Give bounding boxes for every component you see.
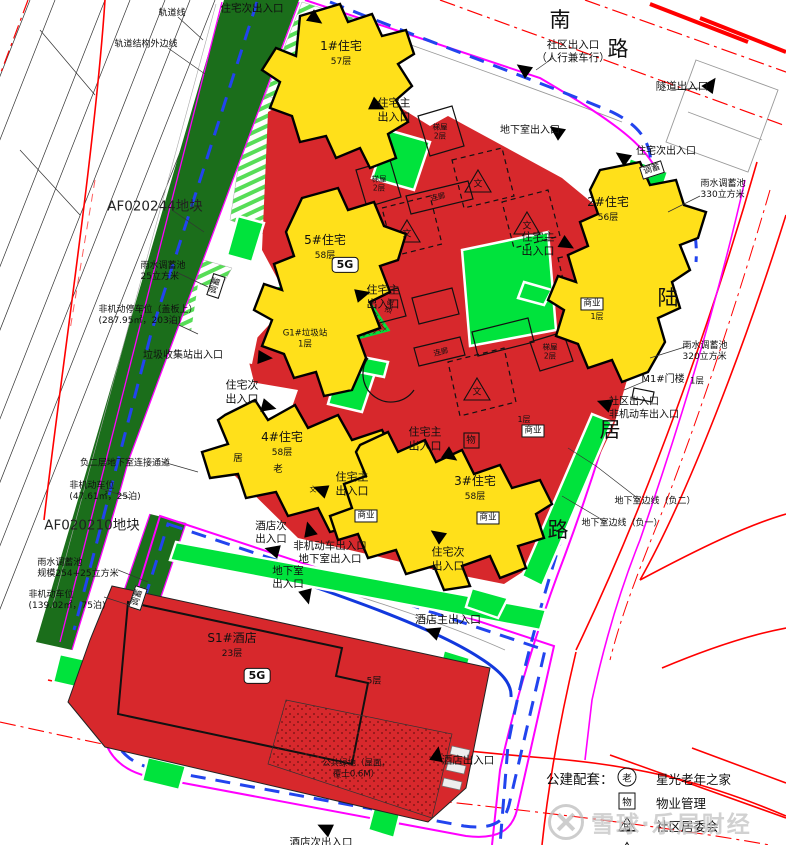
badge-5g-hotel: 5G <box>244 668 271 684</box>
tower-3-floors: 58层 <box>454 489 496 502</box>
hotel-block <box>68 586 490 822</box>
tower-1-floors: 57层 <box>320 54 362 67</box>
legend-label-elder: 星光老年之家 <box>656 769 731 788</box>
legend-symbol-culture: 文 <box>618 842 636 845</box>
label-tower-2: 2#住宅 56层 <box>587 193 629 223</box>
legend-symbol-elder-char: 老 <box>622 770 632 784</box>
base-map <box>0 0 786 845</box>
label-tower-4: 4#住宅 58层 <box>261 428 303 458</box>
label-tower-1: 1#住宅 57层 <box>320 37 362 67</box>
badge-biz-1: 商业 <box>354 509 377 522</box>
legend-symbol-elder: 老 <box>618 768 637 787</box>
label-hotel: S1#酒店 23层 <box>207 629 256 659</box>
hotel-name: S1#酒店 <box>207 629 256 646</box>
badge-5g-tower5: 5G <box>332 257 359 273</box>
badge-biz-4: 商业 <box>580 297 603 310</box>
watermark: 雪球·乐居财经 <box>548 804 752 840</box>
tunnel-structure <box>666 60 778 172</box>
xueqiu-logo-icon <box>548 804 584 840</box>
tower-1-name: 1#住宅 <box>320 37 362 54</box>
watermark-text: 雪球·乐居财经 <box>591 805 752 839</box>
tower-5-name: 5#住宅 <box>304 231 346 248</box>
label-tower-3: 3#住宅 58层 <box>454 472 496 502</box>
tower-4-name: 4#住宅 <box>261 428 303 445</box>
hotel-floors: 23层 <box>207 646 256 659</box>
tower-4-floors: 58层 <box>261 445 303 458</box>
legend-label-culture: 文化室 <box>656 841 694 845</box>
badge-biz-2: 商业 <box>476 511 499 524</box>
badge-biz-3: 商业 <box>521 424 544 437</box>
tower-3-name: 3#住宅 <box>454 472 496 489</box>
tower-2-name: 2#住宅 <box>587 193 629 210</box>
tower-2-floors: 56层 <box>587 210 629 223</box>
legend-title: 公建配套： <box>546 768 614 788</box>
site-plan: 南 路 陆 居 路 轨道线 轨道结构外边线 AF020244地块 雨水调蓄池 2… <box>0 0 786 845</box>
